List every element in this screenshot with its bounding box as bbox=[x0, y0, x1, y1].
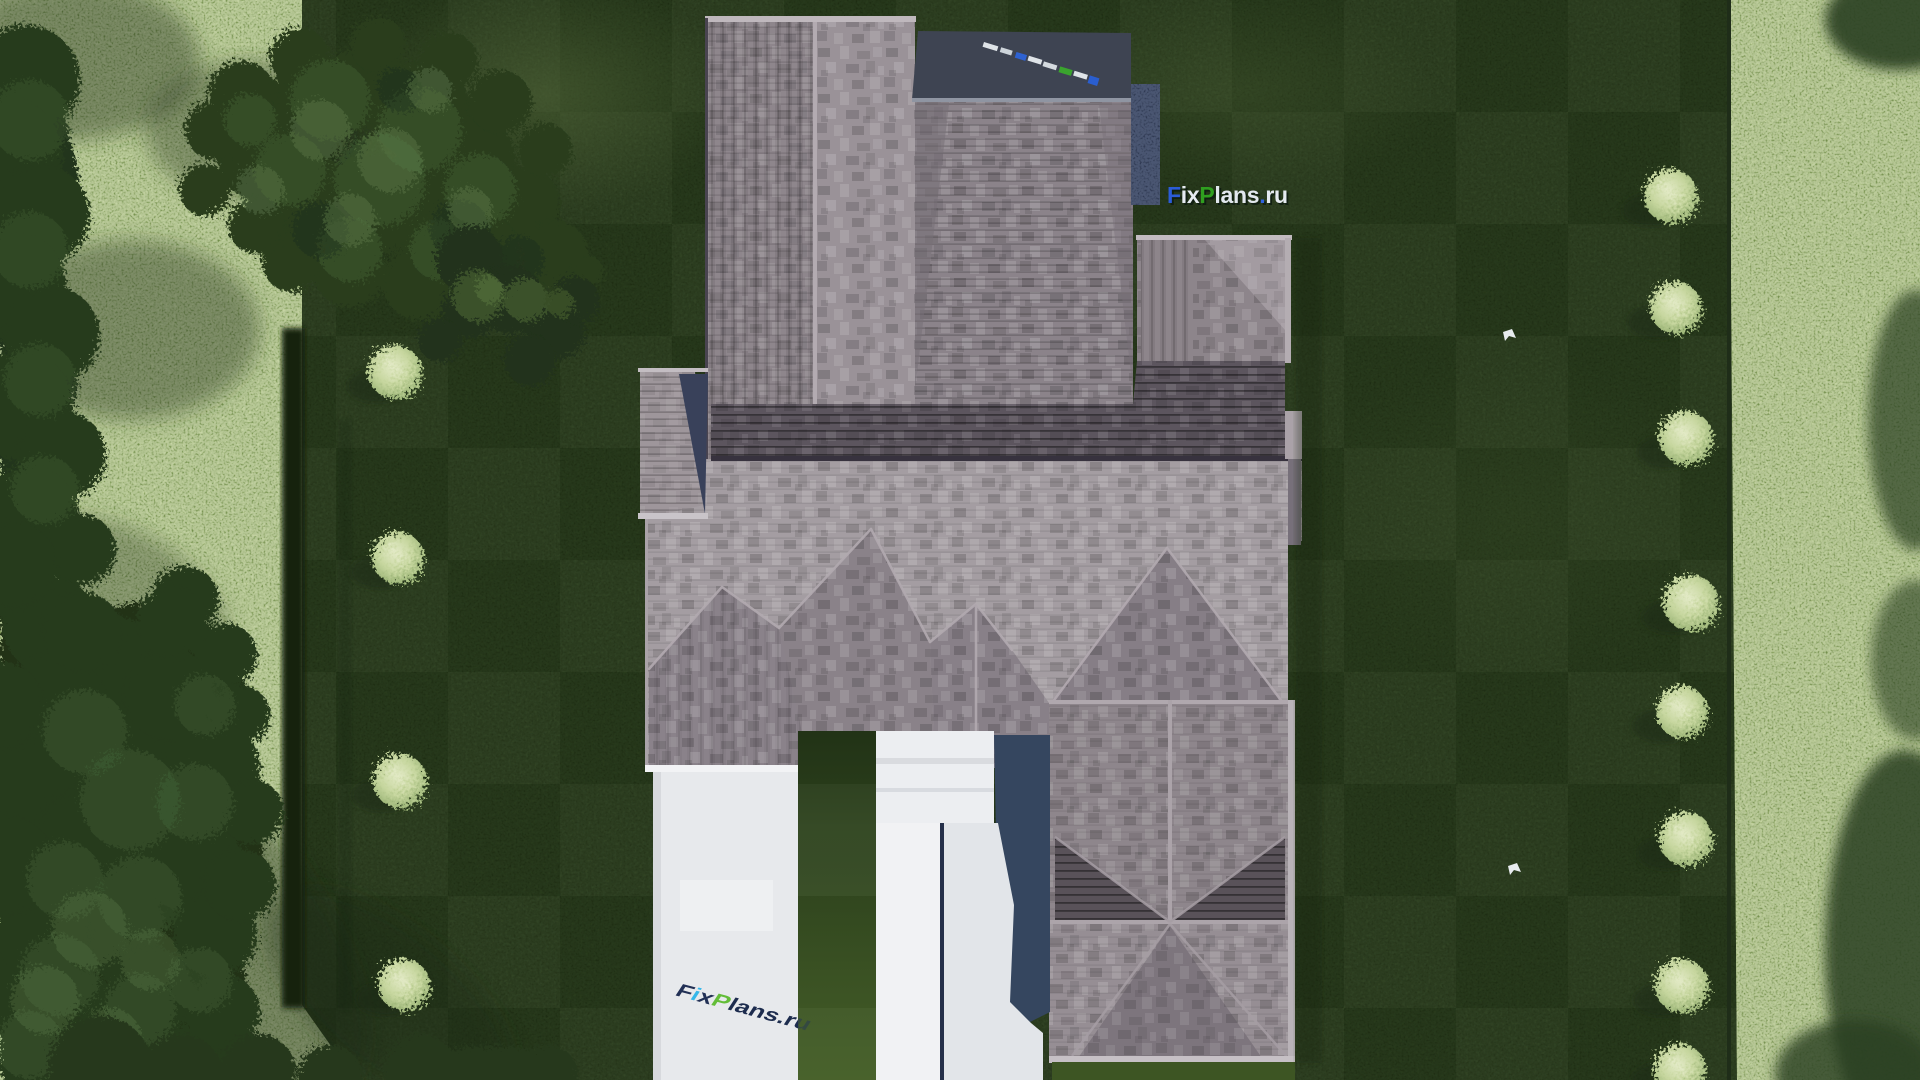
svg-text:FixPlans.ru: FixPlans.ru bbox=[1167, 182, 1288, 208]
